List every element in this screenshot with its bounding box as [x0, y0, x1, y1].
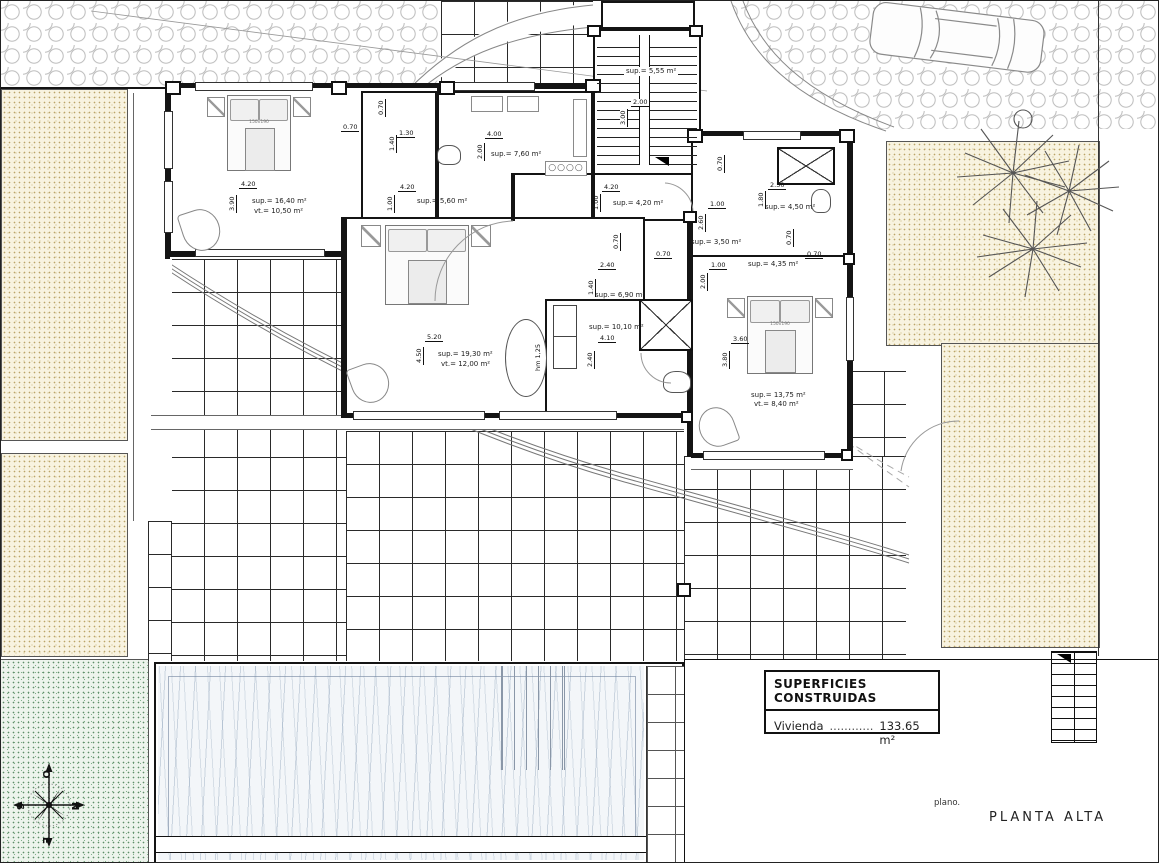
dimension-label: 3.00: [620, 109, 628, 127]
pool-steps: [501, 666, 565, 770]
terrace-tiles-lower-left: [148, 521, 171, 661]
dimension-label: 3.90: [229, 195, 237, 213]
column: [839, 129, 855, 143]
surface-table: SUPERFICIES CONSTRUIDAS Vivienda .......…: [764, 670, 940, 734]
shelf-divider: [554, 306, 576, 337]
pillow: [259, 99, 288, 121]
dimension-label: 5.20: [425, 334, 443, 342]
bed-throw: [765, 330, 796, 374]
pillow: [750, 300, 780, 323]
dimension-label: 2.40: [598, 262, 616, 270]
entry-terrace-tiles: [441, 1, 593, 85]
room-label-dormitorio-principal-vt: vt.= 12,00 m²: [441, 360, 490, 369]
room-label-cocina: sup.= 7,60 m²: [491, 150, 541, 159]
dimension-label: 2.00: [477, 143, 485, 161]
window: [703, 451, 825, 460]
garden-right-upper: [886, 141, 1100, 346]
room-label-dormitorio-2-vt: vt.= 8,40 m²: [754, 400, 799, 409]
window: [846, 297, 854, 361]
pillow: [427, 229, 465, 252]
room-label-distribuidor: sup.= 6,90 m²: [595, 291, 645, 300]
pillow: [780, 300, 810, 323]
nightstand: [727, 298, 745, 318]
dimension-label: 4.10: [598, 335, 616, 343]
dimension-label: 0.70: [613, 233, 621, 251]
exterior-stairs: [1051, 651, 1097, 743]
window: [743, 131, 801, 140]
room-label-dormitorio-1: sup.= 16,40 m²: [252, 197, 307, 206]
dimension-label: 3.80: [722, 351, 730, 369]
dimension-label: 0.70: [786, 229, 794, 247]
dimension-label: 2.40: [587, 351, 595, 369]
room-label-dormitorio-principal: sup.= 19,30 m²: [438, 350, 493, 359]
window: [499, 411, 617, 420]
pool-side-tiles: [646, 666, 685, 862]
terrace-tiles-left: [171, 259, 346, 661]
toilet-icon: [663, 371, 691, 393]
window: [353, 411, 485, 420]
room-label-pasillo: sup.= 5,60 m²: [417, 197, 467, 206]
shelving-unit: [553, 305, 577, 369]
dimension-label: 2.00: [700, 273, 708, 291]
kitchen-counter: [471, 96, 503, 112]
exterior-stairs-rail: [1074, 652, 1075, 742]
bed-size-label: 150x190: [770, 322, 790, 327]
nightstand: [471, 225, 491, 247]
dimension-label: 4.00: [485, 131, 503, 139]
nightstand: [815, 298, 833, 318]
column: [689, 25, 703, 37]
window: [164, 181, 173, 233]
dimension-label: 2.60: [698, 214, 706, 232]
dimension-label: 0.70: [341, 124, 359, 132]
boundary-line-right: [1098, 1, 1099, 656]
room-label-vestidor-2: sup.= 4,35 m²: [748, 260, 798, 269]
room-label-vestidor-1: sup.= 3,50 m²: [691, 238, 741, 247]
column: [683, 211, 697, 223]
column: [841, 449, 853, 461]
dimension-label: 1.00: [708, 201, 726, 209]
surface-row-label: Vivienda: [774, 719, 824, 747]
wall-segment: [341, 217, 345, 417]
garden-bottom-left: [1, 659, 149, 863]
bed-throw: [408, 260, 447, 305]
floor-plan-canvas: 150x190 ○○○○ 150x190 sup.= 16,40: [0, 0, 1159, 863]
plan-title: PLANTA ALTA: [989, 810, 1106, 825]
dimension-label: 4.20: [602, 184, 620, 192]
surface-table-header: SUPERFICIES CONSTRUIDAS: [766, 672, 938, 711]
dimension-label: 0.70: [654, 251, 672, 259]
paved-driveway-right: [719, 1, 1159, 129]
column: [587, 25, 601, 37]
double-bed-icon: [385, 225, 469, 305]
nightstand: [361, 225, 381, 247]
dimension-label: 0.70: [717, 155, 725, 173]
shower-icon: [777, 147, 835, 185]
room-label-dormitorio-1-vt: vt.= 10,50 m²: [254, 207, 303, 216]
hob-icon: ○○○○: [545, 161, 587, 176]
window: [164, 111, 173, 169]
window: [195, 249, 325, 257]
dimension-label: 3.60: [731, 336, 749, 344]
dimension-label: 4.20: [398, 184, 416, 192]
pool-inner-edge: [168, 676, 636, 852]
dimension-label: 1.40: [389, 135, 397, 153]
column: [677, 583, 691, 597]
room-label-hall: sup.= 4,20 m²: [613, 199, 663, 208]
wall-segment: [593, 27, 701, 31]
dimension-label: 4.50: [416, 347, 424, 365]
column: [681, 411, 693, 423]
column: [843, 253, 855, 265]
dimension-label: 1.40: [588, 279, 596, 297]
dimension-label: 2.50: [768, 182, 786, 190]
pool-overflow-channel: [156, 836, 646, 853]
column: [439, 81, 455, 95]
tall-cabinet: [573, 99, 587, 157]
dimension-label: hm 1,25: [535, 342, 542, 373]
room-label-bano: sup.= 10,10 m²: [589, 323, 644, 332]
garden-right-lower: [941, 343, 1100, 648]
room-label-escalera: sup.= 5,55 m²: [624, 67, 678, 76]
bed-size-label: 150x190: [249, 120, 269, 125]
room-label-aseo: sup.= 4,50 m²: [765, 203, 815, 212]
dimension-label: 2.00: [631, 99, 649, 107]
swimming-pool: [154, 662, 684, 863]
dimension-label: 0.70: [805, 251, 823, 259]
dimension-label: 1.00: [709, 262, 727, 270]
bed-throw: [245, 128, 275, 171]
surface-row-value: 133.65 m²: [879, 719, 930, 747]
terrace-tiles-right-upper: [851, 371, 906, 456]
terrace-tiles-center: [346, 431, 684, 661]
window: [195, 82, 313, 91]
double-bed-icon: 150x190: [227, 95, 291, 171]
stair-direction-arrow: [655, 157, 669, 166]
plan-label: plano.: [934, 798, 960, 808]
dimension-label: 1.80: [758, 191, 766, 209]
nightstand: [207, 97, 225, 117]
dimension-label: 0.70: [378, 99, 386, 117]
window: [449, 82, 535, 91]
room-hall: [513, 173, 693, 221]
wall-segment: [511, 173, 515, 221]
column: [165, 81, 181, 95]
pillow: [230, 99, 259, 121]
surface-row-dots: ............: [830, 719, 874, 747]
room-label-dormitorio-2: sup.= 13,75 m²: [751, 391, 806, 400]
nightstand: [293, 97, 311, 117]
exterior-stairs-arrow: [1057, 654, 1071, 663]
dimension-label: 4.20: [239, 181, 257, 189]
surface-table-row: Vivienda ............ 133.65 m²: [766, 711, 938, 747]
terrace-tiles-right: [684, 456, 906, 659]
kitchen-counter: [507, 96, 539, 112]
double-bed-icon: 150x190: [747, 296, 813, 374]
dimension-label: 1.30: [397, 130, 415, 138]
garden-left-upper: [1, 89, 128, 441]
column: [331, 81, 347, 95]
pillow: [388, 229, 426, 252]
dimension-label: 1.00: [387, 195, 395, 213]
dimension-label: 1.00: [593, 194, 601, 212]
shower-icon: [639, 299, 693, 351]
toilet-icon: [437, 145, 461, 165]
garden-left-lower: [1, 453, 128, 657]
